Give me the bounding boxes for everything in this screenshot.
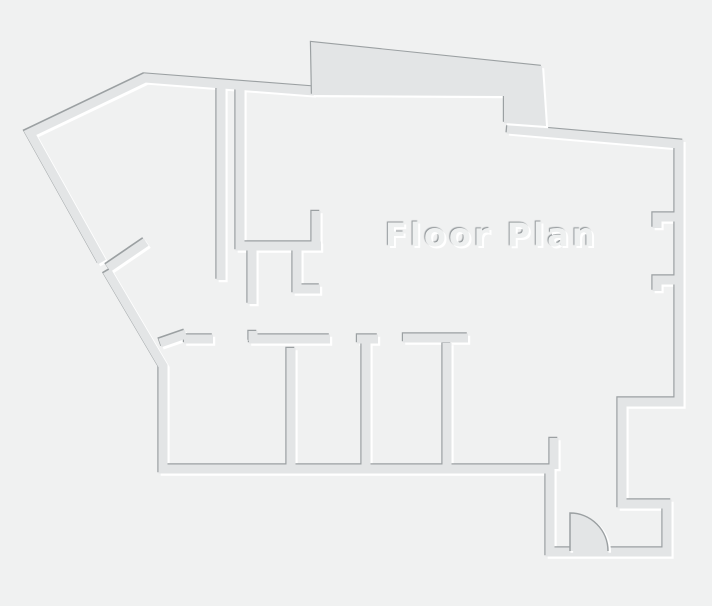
floorplan-title: Floor Plan [385,219,598,251]
walls-group [29,77,681,554]
door-swing-icon [570,513,610,553]
bay-slab-group [310,41,548,128]
floorplan-canvas [0,0,712,606]
walls-shadow-layer [29,77,678,551]
bay-body [311,42,546,126]
floorplan-stage: Floor Plan [0,0,712,606]
